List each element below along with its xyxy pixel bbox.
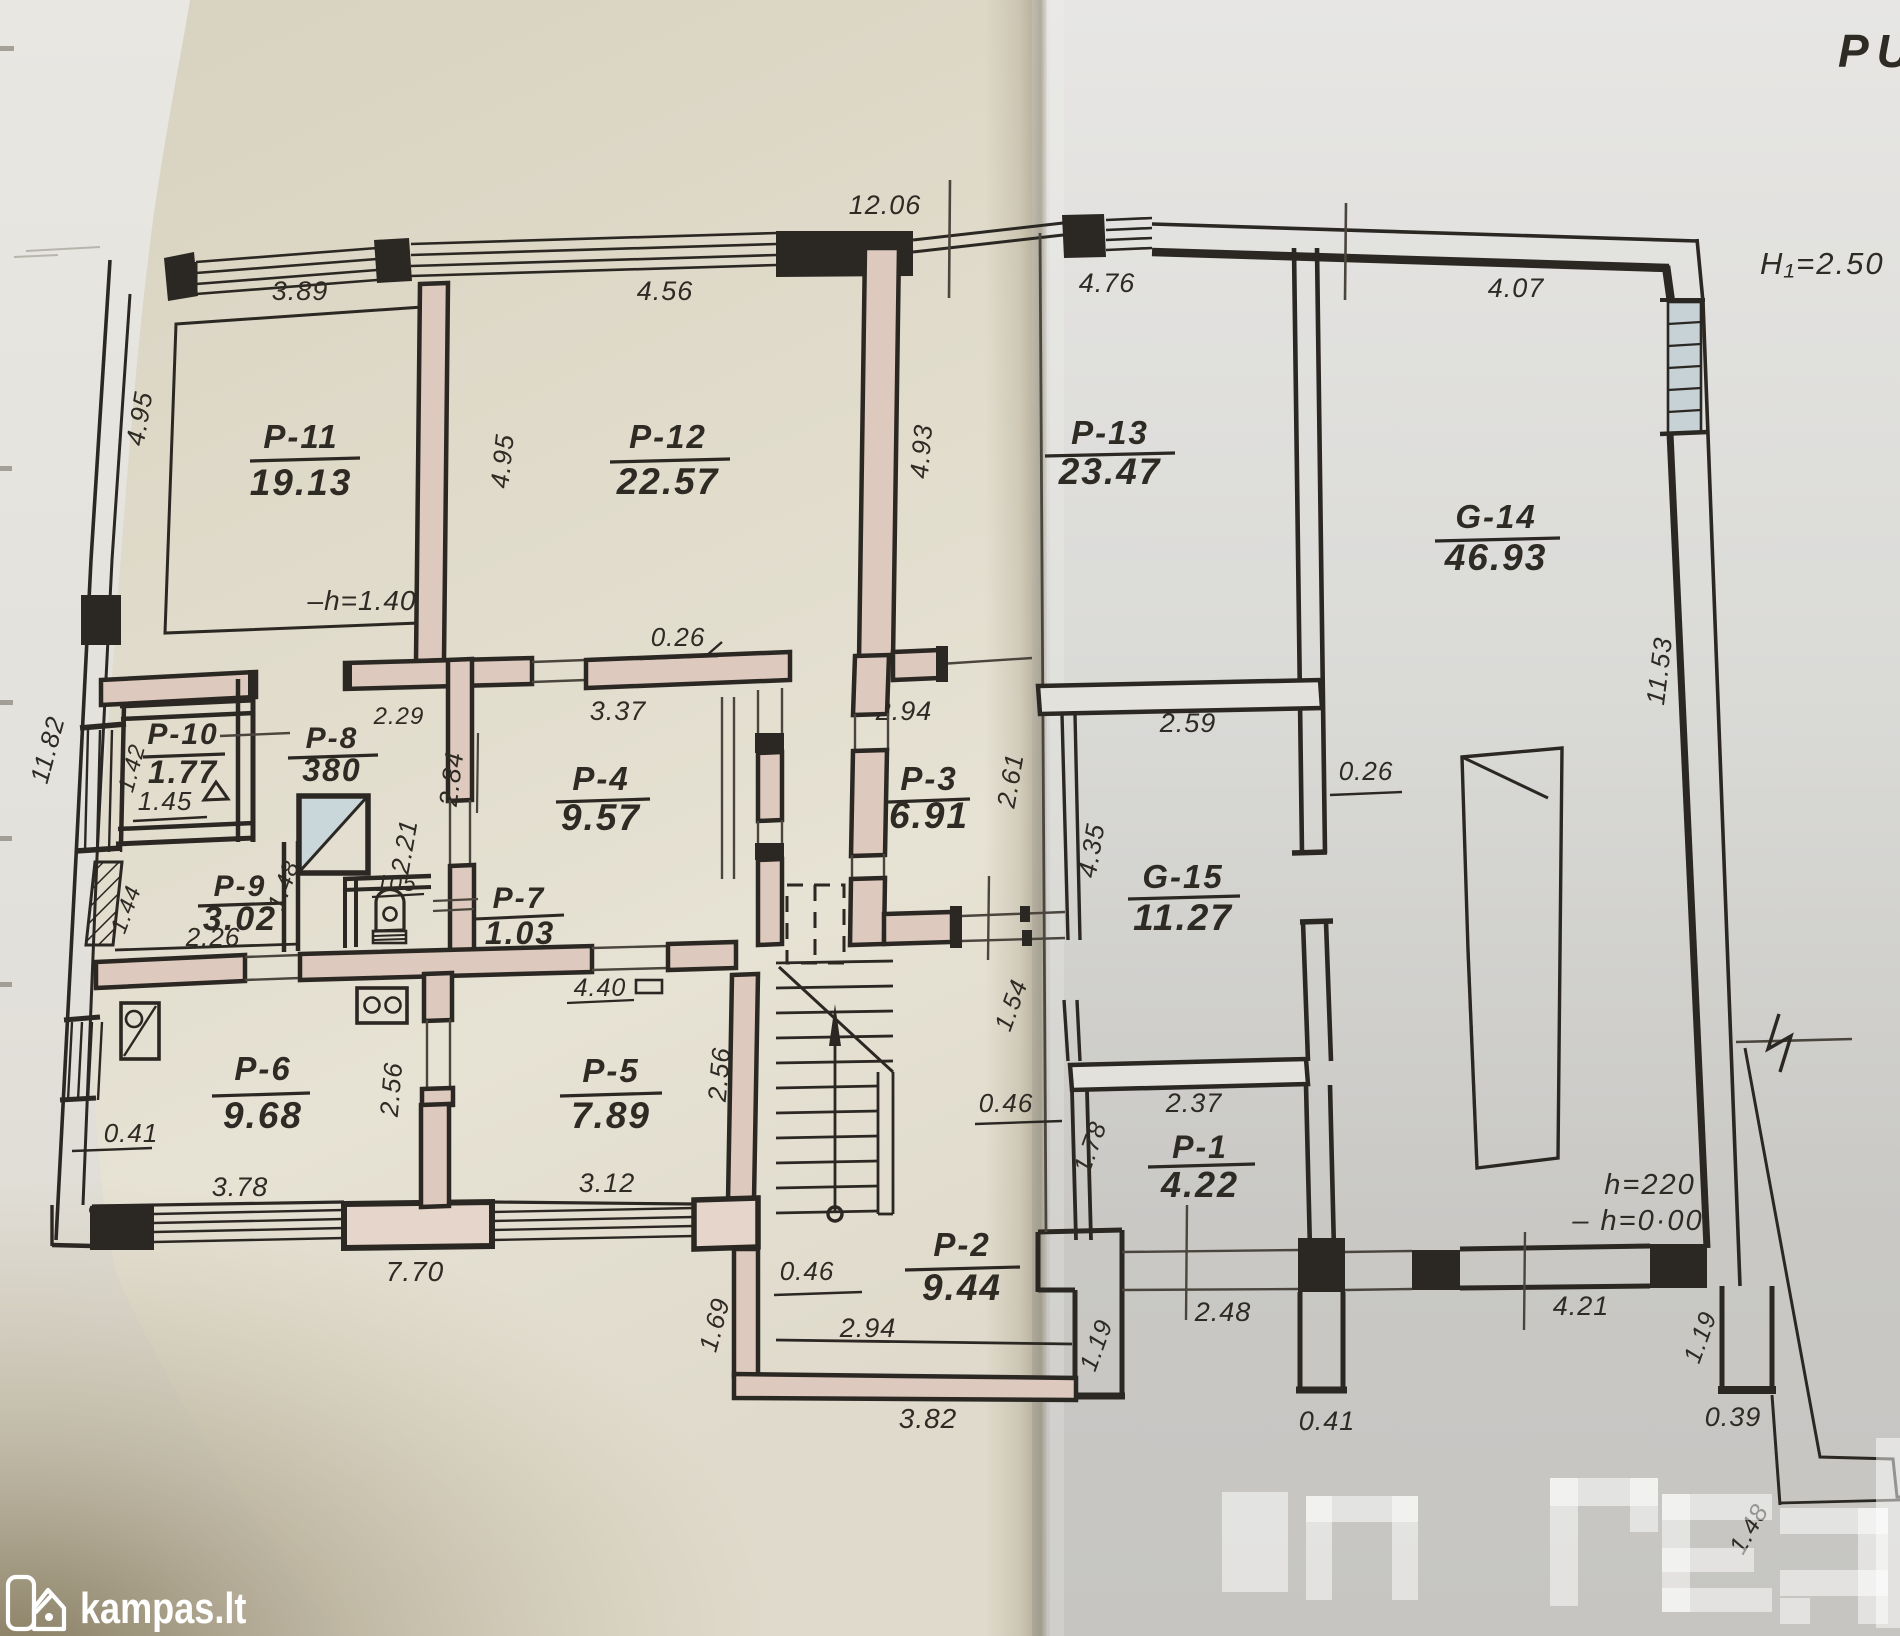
svg-text:7.89: 7.89 bbox=[571, 1095, 651, 1136]
svg-text:2.59: 2.59 bbox=[1159, 708, 1217, 738]
svg-text:12.06: 12.06 bbox=[849, 190, 922, 220]
svg-text:P-1: P-1 bbox=[1172, 1129, 1228, 1165]
svg-text:P-2: P-2 bbox=[933, 1226, 990, 1263]
svg-text:3.37: 3.37 bbox=[590, 696, 647, 726]
svg-text:11.27: 11.27 bbox=[1133, 897, 1233, 938]
svg-text:4.56: 4.56 bbox=[637, 276, 694, 306]
svg-text:P-6: P-6 bbox=[234, 1050, 291, 1087]
svg-text:G-15: G-15 bbox=[1142, 858, 1223, 895]
svg-text:2.37: 2.37 bbox=[1165, 1088, 1223, 1118]
svg-text:kampas.lt: kampas.lt bbox=[80, 1584, 246, 1633]
svg-text:P-12: P-12 bbox=[629, 418, 707, 455]
svg-text:0.46: 0.46 bbox=[780, 1256, 835, 1286]
svg-text:4.76: 4.76 bbox=[1079, 268, 1136, 298]
svg-text:P-13: P-13 bbox=[1071, 414, 1149, 451]
svg-text:22.57: 22.57 bbox=[616, 461, 720, 502]
svg-text:– h=0·00: – h=0·00 bbox=[1571, 1205, 1703, 1237]
svg-text:9.44: 9.44 bbox=[922, 1267, 1002, 1308]
svg-text:2.56: 2.56 bbox=[374, 1061, 409, 1119]
svg-text:0.46: 0.46 bbox=[979, 1088, 1034, 1118]
svg-text:0.39: 0.39 bbox=[1705, 1402, 1762, 1432]
svg-text:0.41: 0.41 bbox=[104, 1118, 159, 1148]
svg-text:7.70: 7.70 bbox=[386, 1256, 445, 1287]
svg-text:19.13: 19.13 bbox=[250, 462, 353, 503]
svg-text:4.40: 4.40 bbox=[574, 974, 627, 1002]
svg-text:380: 380 bbox=[302, 752, 361, 788]
svg-text:4.22: 4.22 bbox=[1160, 1164, 1239, 1205]
svg-text:3.12: 3.12 bbox=[579, 1168, 636, 1198]
svg-text:6.91: 6.91 bbox=[889, 795, 969, 836]
svg-text:P-4: P-4 bbox=[572, 760, 629, 797]
svg-text:0.41: 0.41 bbox=[1299, 1406, 1356, 1436]
svg-text:4.95: 4.95 bbox=[484, 432, 520, 489]
svg-text:2.48: 2.48 bbox=[1194, 1297, 1252, 1327]
svg-text:3.89: 3.89 bbox=[272, 276, 329, 306]
svg-text:9.68: 9.68 bbox=[223, 1095, 303, 1136]
svg-text:9.57: 9.57 bbox=[561, 797, 641, 838]
svg-text:H₁=2.50: H₁=2.50 bbox=[1760, 246, 1885, 281]
svg-text:2.29: 2.29 bbox=[373, 703, 425, 730]
svg-text:P-9: P-9 bbox=[214, 870, 267, 903]
svg-text:P-3: P-3 bbox=[900, 760, 957, 797]
svg-text:1.45: 1.45 bbox=[138, 786, 193, 816]
svg-text:3.82: 3.82 bbox=[899, 1403, 958, 1434]
svg-text:2.94: 2.94 bbox=[839, 1313, 897, 1343]
svg-text:23.47: 23.47 bbox=[1058, 451, 1162, 492]
svg-text:P-8: P-8 bbox=[306, 722, 359, 755]
svg-text:0.26: 0.26 bbox=[1339, 756, 1394, 786]
svg-text:P-10: P-10 bbox=[147, 718, 218, 751]
svg-text:G-14: G-14 bbox=[1455, 498, 1536, 535]
svg-text:–h=1.40: –h=1.40 bbox=[307, 585, 417, 616]
svg-text:4.07: 4.07 bbox=[1488, 273, 1545, 303]
svg-text:h=220: h=220 bbox=[1604, 1169, 1695, 1201]
svg-text:3.78: 3.78 bbox=[212, 1172, 269, 1202]
svg-text:4.21: 4.21 bbox=[1553, 1291, 1610, 1321]
svg-text:46.93: 46.93 bbox=[1444, 537, 1548, 578]
svg-text:PUS: PUS bbox=[1838, 25, 1900, 77]
svg-text:P-11: P-11 bbox=[263, 418, 338, 455]
svg-text:1.77: 1.77 bbox=[148, 754, 218, 790]
svg-text:4.93: 4.93 bbox=[904, 423, 939, 480]
svg-text:P-5: P-5 bbox=[582, 1052, 639, 1089]
svg-text:P-7: P-7 bbox=[493, 882, 546, 915]
svg-text:0.26: 0.26 bbox=[651, 622, 706, 652]
